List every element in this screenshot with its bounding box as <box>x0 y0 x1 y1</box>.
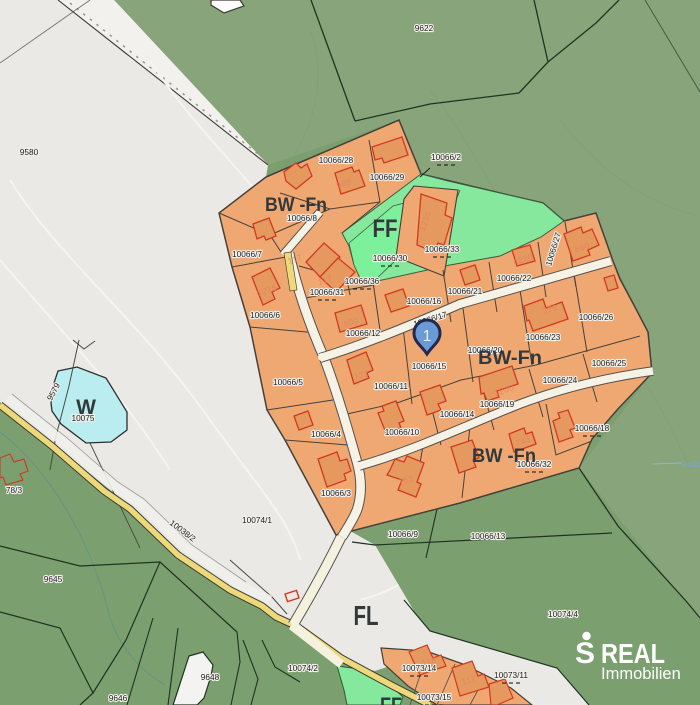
svg-text:10066/16: 10066/16 <box>407 296 442 306</box>
svg-text:10066/7: 10066/7 <box>232 249 262 259</box>
svg-text:10066/28: 10066/28 <box>319 155 354 165</box>
svg-text:10066/23: 10066/23 <box>526 332 561 342</box>
svg-text:10074/2: 10074/2 <box>288 663 318 673</box>
svg-text:9580: 9580 <box>20 147 39 157</box>
svg-text:10066/25: 10066/25 <box>592 358 627 368</box>
svg-text:10066/11: 10066/11 <box>374 381 408 391</box>
svg-text:10066/13: 10066/13 <box>471 531 506 541</box>
svg-text:10074/1: 10074/1 <box>242 515 272 525</box>
svg-text:10066/30: 10066/30 <box>373 253 408 263</box>
svg-text:FF: FF <box>380 693 402 705</box>
svg-text:10066/24: 10066/24 <box>543 375 578 385</box>
svg-text:Immobilien: Immobilien <box>601 665 681 683</box>
svg-text:10073/15: 10073/15 <box>417 692 452 702</box>
svg-text:FL: FL <box>354 600 379 631</box>
svg-text:10066/12: 10066/12 <box>346 328 381 338</box>
svg-text:10066/19: 10066/19 <box>480 399 515 409</box>
svg-text:BW-Fn: BW-Fn <box>478 347 542 369</box>
svg-text:78/3: 78/3 <box>6 485 23 495</box>
svg-text:10066/14: 10066/14 <box>440 409 475 419</box>
svg-text:10066/18: 10066/18 <box>575 423 610 433</box>
svg-text:1: 1 <box>423 328 432 345</box>
svg-text:10066/26: 10066/26 <box>579 312 614 322</box>
svg-text:10066/31: 10066/31 <box>310 287 345 297</box>
svg-text:10066/15: 10066/15 <box>412 361 447 371</box>
svg-text:9648: 9648 <box>201 672 220 682</box>
svg-text:10066/21: 10066/21 <box>448 286 483 296</box>
svg-text:10073/14: 10073/14 <box>402 663 437 673</box>
svg-text:9645: 9645 <box>44 574 63 584</box>
svg-text:Roßb: Roßb <box>681 459 700 469</box>
svg-text:10066/4: 10066/4 <box>311 429 341 439</box>
svg-text:9622: 9622 <box>415 23 434 33</box>
svg-text:10066/36: 10066/36 <box>345 276 380 286</box>
svg-text:10066/2: 10066/2 <box>431 152 461 162</box>
svg-text:W: W <box>76 396 96 419</box>
svg-text:10066/9: 10066/9 <box>388 529 418 539</box>
svg-text:10074/4: 10074/4 <box>548 609 578 619</box>
svg-text:10066/3: 10066/3 <box>321 488 351 498</box>
svg-text:10066/29: 10066/29 <box>370 172 405 182</box>
svg-text:10066/5: 10066/5 <box>273 377 303 387</box>
svg-text:S: S <box>575 637 595 670</box>
svg-text:FF: FF <box>373 215 398 243</box>
svg-text:10066/10: 10066/10 <box>385 427 420 437</box>
svg-text:9646: 9646 <box>109 693 128 703</box>
svg-text:10066/22: 10066/22 <box>497 273 532 283</box>
svg-text:10073/11: 10073/11 <box>494 670 528 680</box>
svg-text:BW -Fn: BW -Fn <box>265 194 327 216</box>
svg-text:BW -Fn: BW -Fn <box>472 445 536 467</box>
svg-text:10066/33: 10066/33 <box>425 244 460 254</box>
svg-text:10066/6: 10066/6 <box>250 310 280 320</box>
